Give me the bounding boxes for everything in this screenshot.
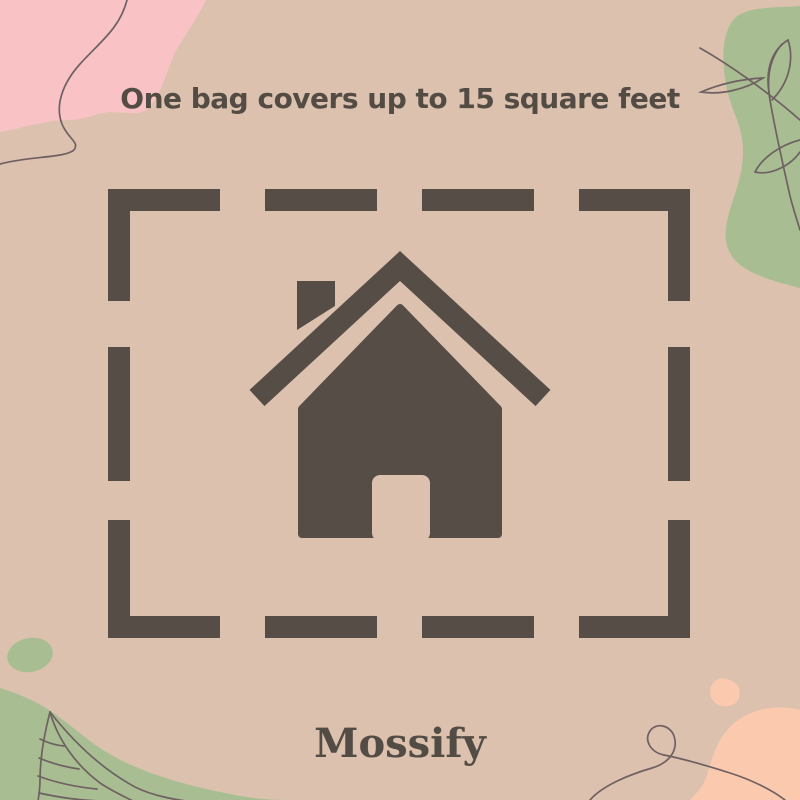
sage-blob-right	[723, 6, 800, 288]
house-icon	[257, 266, 543, 541]
green-dot-bottom-left	[4, 634, 56, 677]
headline-text: One bag covers up to 15 square feet	[0, 80, 800, 118]
brand-logo-text: Mossify	[0, 721, 800, 767]
peach-dot-bottom-right	[710, 678, 740, 706]
poster-canvas: One bag covers up to 15 square feet Moss…	[0, 0, 800, 800]
poster-artwork	[0, 0, 800, 800]
house-door	[372, 475, 430, 541]
